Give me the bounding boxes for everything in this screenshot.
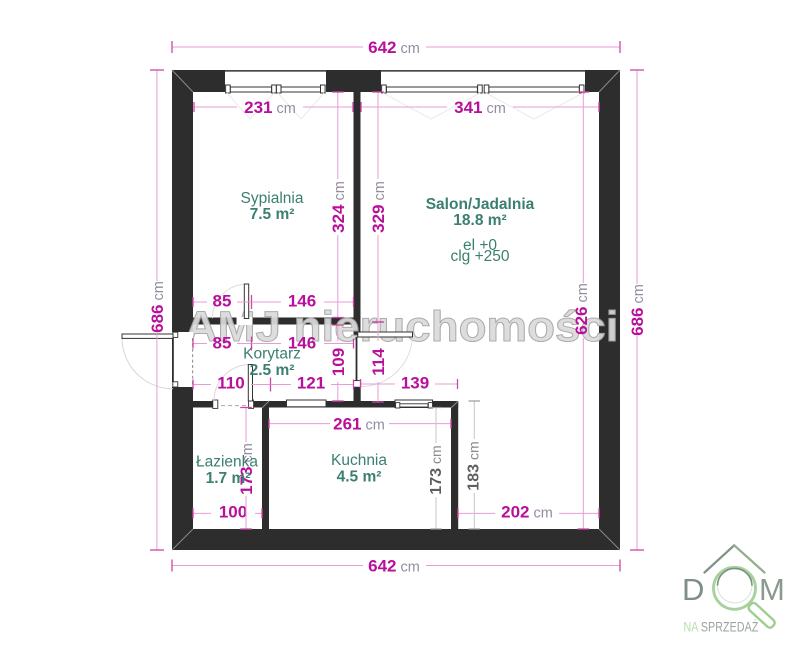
svg-text:146: 146 [288, 292, 316, 311]
svg-text:Kuchnia: Kuchnia [331, 452, 387, 469]
svg-text:261cm: 261cm [333, 415, 385, 434]
svg-text:686cm: 686cm [628, 284, 647, 336]
svg-text:686cm: 686cm [148, 281, 167, 333]
svg-text:Salon/Jadalnia: Salon/Jadalnia [426, 196, 535, 213]
svg-text:139: 139 [401, 374, 429, 393]
svg-text:85: 85 [213, 334, 232, 353]
svg-text:183cm: 183cm [466, 441, 483, 490]
svg-text:341cm: 341cm [454, 98, 506, 117]
svg-text:329cm: 329cm [369, 181, 388, 233]
svg-text:202cm: 202cm [501, 503, 553, 522]
svg-text:324cm: 324cm [329, 181, 348, 233]
svg-text:Korytarz: Korytarz [243, 346, 301, 363]
svg-text:642cm: 642cm [368, 38, 420, 57]
svg-text:clg +250: clg +250 [450, 248, 509, 265]
svg-text:Sypialnia: Sypialnia [241, 190, 304, 207]
svg-text:2.5 m²: 2.5 m² [250, 362, 295, 379]
svg-text:100: 100 [219, 503, 247, 522]
svg-text:173cm: 173cm [428, 445, 445, 494]
svg-text:642cm: 642cm [368, 557, 420, 576]
svg-text:7.5 m²: 7.5 m² [250, 206, 295, 223]
svg-text:4.5 m²: 4.5 m² [337, 469, 382, 486]
svg-text:626cm: 626cm [572, 283, 591, 335]
svg-text:M: M [759, 572, 785, 607]
svg-text:NASPRZEDAŻ: NASPRZEDAŻ [684, 620, 759, 635]
svg-text:109: 109 [329, 348, 348, 376]
svg-text:85: 85 [213, 292, 232, 311]
svg-text:121: 121 [297, 374, 325, 393]
svg-text:1.7 m²: 1.7 m² [206, 470, 251, 487]
svg-text:231cm: 231cm [244, 98, 296, 117]
svg-text:D: D [682, 572, 704, 607]
svg-text:114: 114 [369, 348, 388, 376]
svg-text:110: 110 [217, 374, 244, 393]
svg-text:18.8 m²: 18.8 m² [453, 212, 506, 229]
svg-text:Łazienka: Łazienka [196, 454, 258, 471]
